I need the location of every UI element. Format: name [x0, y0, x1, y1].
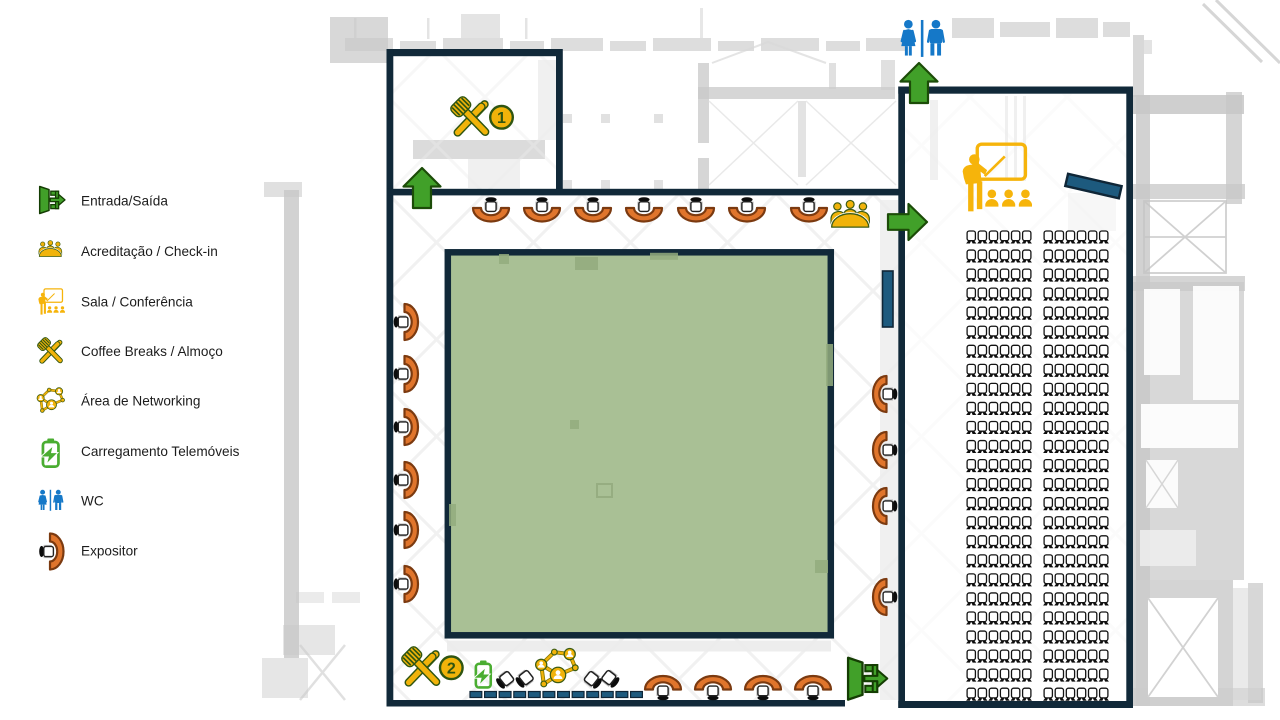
svg-text:1: 1 [497, 110, 506, 127]
svg-text:Carregamento Telemóveis: Carregamento Telemóveis [81, 444, 240, 459]
svg-text:Expositor: Expositor [81, 544, 138, 559]
svg-text:Acreditação / Check-in: Acreditação / Check-in [81, 244, 218, 259]
svg-text:Sala / Conferência: Sala / Conferência [81, 295, 193, 310]
svg-text:Entrada/Saída: Entrada/Saída [81, 194, 168, 209]
svg-text:Coffee Breaks / Almoço: Coffee Breaks / Almoço [81, 344, 223, 359]
svg-text:WC: WC [81, 494, 104, 509]
svg-text:2: 2 [447, 661, 456, 678]
svg-text:Área de Networking: Área de Networking [81, 394, 200, 409]
